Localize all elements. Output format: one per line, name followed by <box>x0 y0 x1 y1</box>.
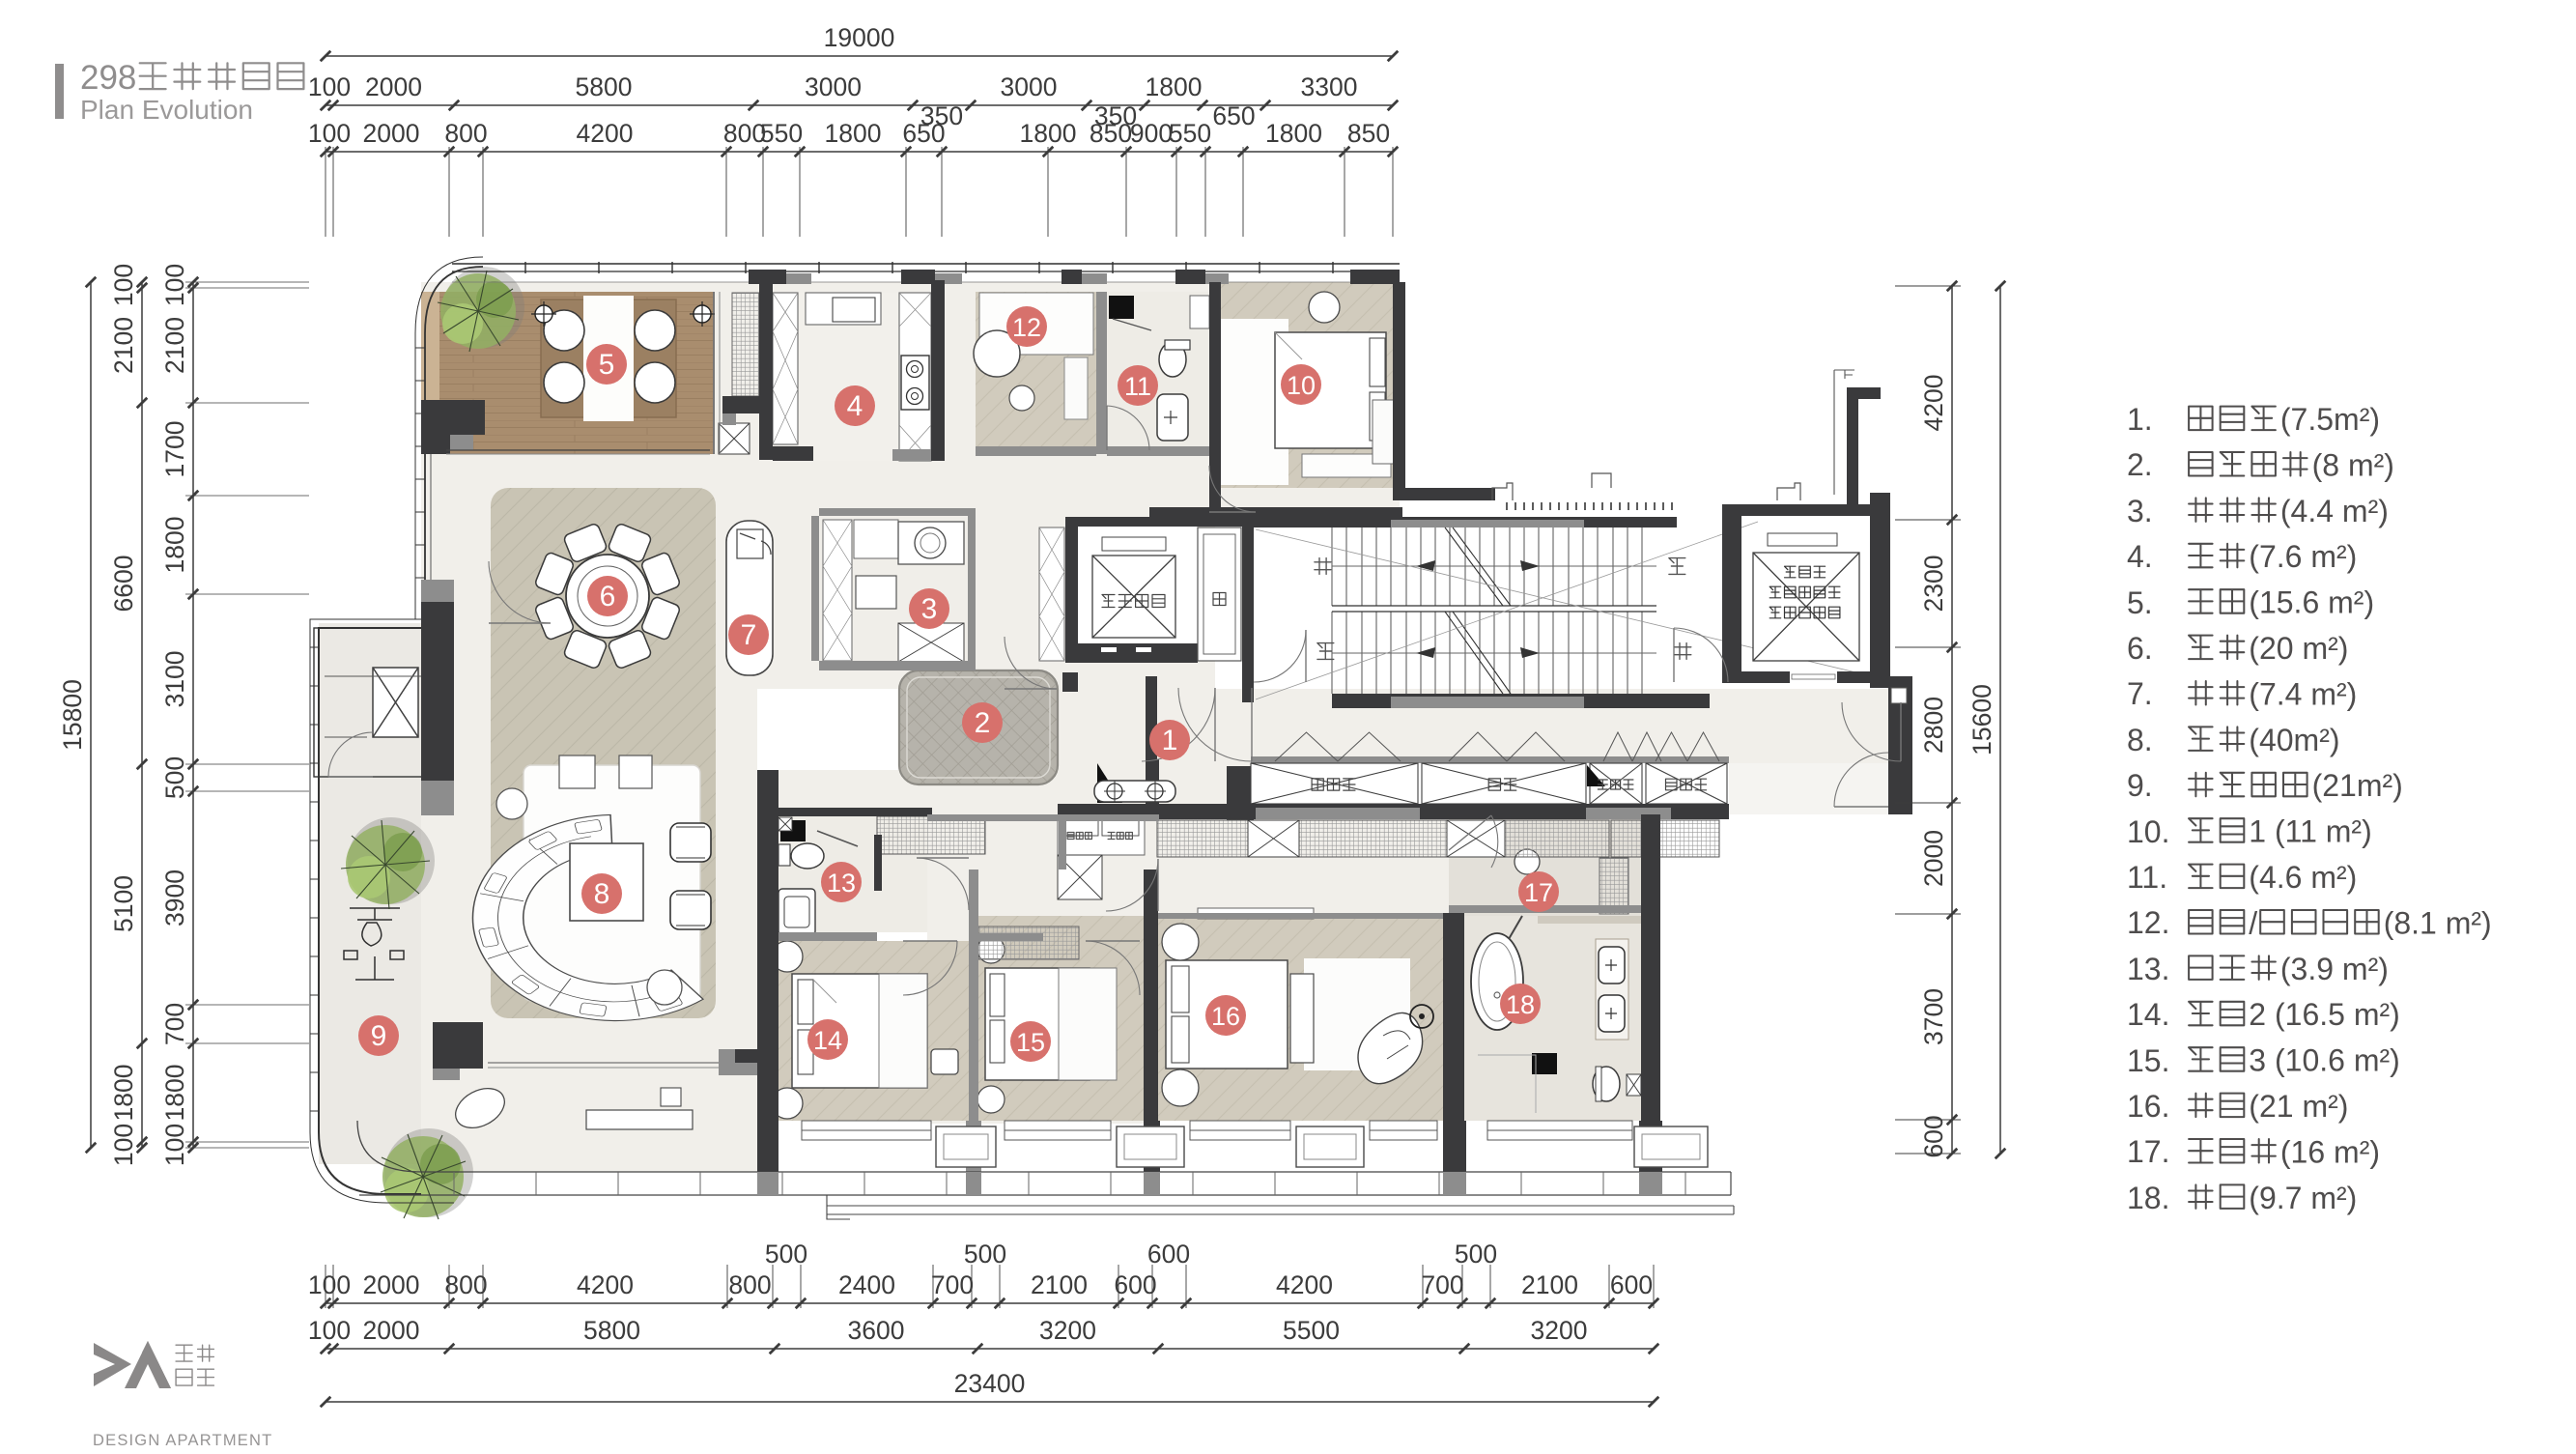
svg-text:2: 2 <box>975 707 991 739</box>
svg-text:2000: 2000 <box>363 1316 420 1345</box>
svg-text:4200: 4200 <box>577 1270 634 1299</box>
svg-text:9: 9 <box>371 1020 387 1052</box>
svg-text:14: 14 <box>813 1026 842 1055</box>
svg-text:5100: 5100 <box>109 875 138 932</box>
svg-text:13.: 13. <box>2127 952 2169 986</box>
svg-text:3300: 3300 <box>1301 72 1358 101</box>
svg-text:15: 15 <box>1016 1028 1045 1057</box>
svg-text:2400: 2400 <box>838 1270 895 1299</box>
svg-text:2100: 2100 <box>1031 1270 1088 1299</box>
svg-text:1800: 1800 <box>1020 119 1077 148</box>
svg-text:18.: 18. <box>2127 1181 2169 1215</box>
svg-text:(7.5m²): (7.5m²) <box>2280 402 2380 437</box>
svg-text:4200: 4200 <box>1276 1270 1333 1299</box>
svg-text:16: 16 <box>1211 1002 1240 1031</box>
svg-text:(7.6 m²): (7.6 m²) <box>2249 539 2357 574</box>
svg-text:9.: 9. <box>2127 768 2153 803</box>
svg-text:(15.6 m²): (15.6 m²) <box>2249 585 2374 620</box>
svg-text:2100: 2100 <box>109 317 138 374</box>
svg-text:3: 3 <box>921 593 938 625</box>
svg-text:10: 10 <box>1287 371 1316 400</box>
svg-text:1800: 1800 <box>825 119 882 148</box>
svg-text:13: 13 <box>827 869 856 898</box>
svg-text:11.: 11. <box>2127 860 2167 895</box>
svg-text:100: 100 <box>160 264 189 306</box>
svg-text:600: 600 <box>1919 1115 1948 1157</box>
svg-text:6: 6 <box>600 581 616 613</box>
svg-text:3 (10.6 m²): 3 (10.6 m²) <box>2249 1043 2399 1078</box>
svg-text:100: 100 <box>109 264 138 306</box>
svg-text:2 (16.5 m²): 2 (16.5 m²) <box>2249 997 2399 1032</box>
svg-text:550: 550 <box>1169 119 1211 148</box>
svg-text:100: 100 <box>308 1270 351 1299</box>
svg-text:19000: 19000 <box>824 23 895 52</box>
svg-text:2.: 2. <box>2127 447 2153 482</box>
svg-text:2000: 2000 <box>1919 830 1948 887</box>
svg-text:Plan Evolution: Plan Evolution <box>80 95 253 125</box>
svg-text:12.: 12. <box>2127 905 2169 940</box>
svg-text:15800: 15800 <box>58 679 87 751</box>
svg-text:850: 850 <box>1090 119 1132 148</box>
svg-text:6600: 6600 <box>109 556 138 613</box>
svg-text:800: 800 <box>444 1270 487 1299</box>
svg-text:(7.4 m²): (7.4 m²) <box>2249 676 2357 711</box>
svg-text:1800: 1800 <box>109 1065 138 1122</box>
svg-text:2000: 2000 <box>363 119 420 148</box>
svg-text:3100: 3100 <box>160 651 189 708</box>
svg-text:100: 100 <box>308 72 351 101</box>
svg-text:500: 500 <box>160 756 189 799</box>
svg-text:7: 7 <box>741 619 757 651</box>
svg-text:1800: 1800 <box>160 517 189 574</box>
svg-text:2100: 2100 <box>160 317 189 374</box>
svg-text:4200: 4200 <box>577 119 634 148</box>
svg-text:5: 5 <box>599 349 615 381</box>
svg-text:1800: 1800 <box>1265 119 1322 148</box>
svg-text:3.: 3. <box>2127 494 2153 528</box>
svg-text:(8 m²): (8 m²) <box>2312 447 2394 482</box>
svg-text:17: 17 <box>1524 878 1553 907</box>
svg-text:2000: 2000 <box>365 72 422 101</box>
svg-text:700: 700 <box>1421 1270 1463 1299</box>
svg-text:6.: 6. <box>2127 631 2153 666</box>
svg-text:100: 100 <box>308 1316 351 1345</box>
svg-text:500: 500 <box>1455 1240 1497 1269</box>
svg-text:2100: 2100 <box>1521 1270 1578 1299</box>
svg-text:5500: 5500 <box>1283 1316 1340 1345</box>
svg-text:600: 600 <box>1610 1270 1653 1299</box>
svg-text:5800: 5800 <box>576 72 633 101</box>
svg-text:3700: 3700 <box>1919 988 1948 1045</box>
svg-text:650: 650 <box>902 119 945 148</box>
svg-text:298: 298 <box>80 59 136 97</box>
svg-text:2800: 2800 <box>1919 697 1948 754</box>
svg-text:600: 600 <box>1147 1240 1190 1269</box>
svg-text:800: 800 <box>728 1270 771 1299</box>
svg-text:23400: 23400 <box>954 1369 1026 1398</box>
svg-text:DESIGN APARTMENT: DESIGN APARTMENT <box>93 1432 272 1449</box>
svg-text:(9.7 m²): (9.7 m²) <box>2249 1181 2357 1215</box>
svg-text:100: 100 <box>160 1124 189 1166</box>
svg-text:2000: 2000 <box>363 1270 420 1299</box>
svg-text:16.: 16. <box>2127 1089 2169 1124</box>
svg-text:(3.9 m²): (3.9 m²) <box>2280 952 2389 986</box>
svg-text:(4.4 m²): (4.4 m²) <box>2280 494 2389 528</box>
svg-text:12: 12 <box>1012 313 1041 342</box>
svg-text:850: 850 <box>1347 119 1390 148</box>
svg-text:600: 600 <box>1114 1270 1156 1299</box>
svg-text:500: 500 <box>765 1240 807 1269</box>
svg-text:1700: 1700 <box>160 421 189 478</box>
svg-text:18: 18 <box>1506 990 1535 1019</box>
svg-text:2300: 2300 <box>1919 556 1948 613</box>
svg-text:3000: 3000 <box>1001 72 1058 101</box>
svg-text:7.: 7. <box>2127 676 2153 711</box>
svg-text:15.: 15. <box>2127 1043 2169 1078</box>
svg-text:5.: 5. <box>2127 585 2153 620</box>
svg-text:3200: 3200 <box>1039 1316 1096 1345</box>
svg-text:(4.6 m²): (4.6 m²) <box>2249 860 2357 895</box>
svg-text:11: 11 <box>1124 372 1151 401</box>
svg-text:900: 900 <box>1130 119 1173 148</box>
svg-text:17.: 17. <box>2127 1134 2169 1169</box>
svg-text:700: 700 <box>931 1270 974 1299</box>
svg-text:5800: 5800 <box>583 1316 640 1345</box>
svg-text:100: 100 <box>308 119 351 148</box>
svg-text:1 (11 m²): 1 (11 m²) <box>2249 814 2371 849</box>
svg-text:(16 m²): (16 m²) <box>2280 1134 2380 1169</box>
svg-text:4.: 4. <box>2127 539 2153 574</box>
svg-text:1800: 1800 <box>1146 72 1203 101</box>
svg-text:1800: 1800 <box>160 1065 189 1122</box>
svg-text:500: 500 <box>964 1240 1006 1269</box>
svg-text:3200: 3200 <box>1531 1316 1588 1345</box>
svg-text:1: 1 <box>1162 725 1178 756</box>
svg-text:800: 800 <box>444 119 487 148</box>
svg-text:4: 4 <box>847 390 863 422</box>
svg-text:(21m²): (21m²) <box>2312 768 2403 803</box>
svg-text:15600: 15600 <box>1967 684 1996 756</box>
svg-text:8.: 8. <box>2127 723 2153 757</box>
svg-text:3900: 3900 <box>160 870 189 927</box>
svg-text:100: 100 <box>109 1124 138 1166</box>
svg-text:/: / <box>2249 905 2257 940</box>
svg-text:1.: 1. <box>2127 402 2153 437</box>
svg-text:3600: 3600 <box>848 1316 905 1345</box>
svg-text:(21 m²): (21 m²) <box>2249 1089 2348 1124</box>
svg-text:(40m²): (40m²) <box>2249 723 2339 757</box>
svg-text:8: 8 <box>594 878 610 910</box>
svg-text:700: 700 <box>160 1003 189 1045</box>
svg-text:550: 550 <box>760 119 803 148</box>
svg-text:(8.1 m²): (8.1 m²) <box>2384 905 2492 940</box>
svg-text:10.: 10. <box>2127 814 2169 849</box>
svg-text:(20 m²): (20 m²) <box>2249 631 2348 666</box>
svg-text:3000: 3000 <box>805 72 862 101</box>
svg-text:650: 650 <box>1212 101 1255 130</box>
svg-text:4200: 4200 <box>1919 375 1948 432</box>
svg-text:14.: 14. <box>2127 997 2169 1032</box>
